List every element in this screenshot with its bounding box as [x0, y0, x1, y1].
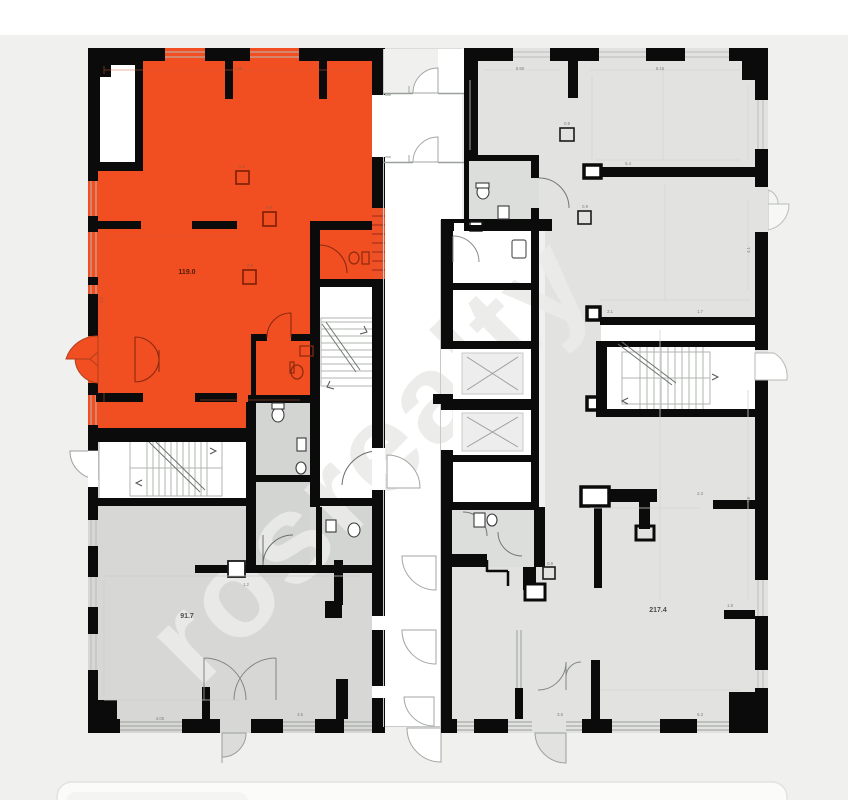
svg-text:1.2: 1.2: [243, 582, 249, 587]
svg-text:1.7: 1.7: [697, 309, 703, 314]
svg-text:0.9: 0.9: [266, 205, 272, 210]
svg-text:0.9: 0.9: [247, 263, 253, 268]
svg-text:3.8: 3.8: [557, 712, 563, 717]
svg-text:91.7: 91.7: [180, 613, 194, 620]
svg-text:7.9: 7.9: [746, 496, 751, 502]
svg-text:4.1: 4.1: [746, 246, 751, 252]
svg-text:119.0: 119.0: [178, 269, 195, 276]
svg-text:5.4: 5.4: [625, 161, 631, 166]
svg-text:8.90: 8.90: [516, 66, 525, 71]
svg-text:3.5: 3.5: [297, 712, 303, 717]
svg-text:0.9: 0.9: [564, 121, 570, 126]
svg-text:1.9: 1.9: [727, 603, 733, 608]
svg-text:4.05: 4.05: [156, 716, 165, 721]
svg-text:6.15: 6.15: [656, 66, 665, 71]
svg-text:2.1: 2.1: [607, 309, 613, 314]
svg-text:0.9: 0.9: [239, 164, 245, 169]
svg-text:6.2: 6.2: [99, 296, 104, 302]
svg-text:5.3: 5.3: [697, 712, 703, 717]
svg-text:2.3: 2.3: [697, 491, 703, 496]
svg-text:0.9: 0.9: [547, 561, 553, 566]
svg-text:217.4: 217.4: [649, 607, 667, 614]
svg-text:0.9: 0.9: [582, 204, 588, 209]
svg-text:7.45: 7.45: [234, 66, 243, 71]
